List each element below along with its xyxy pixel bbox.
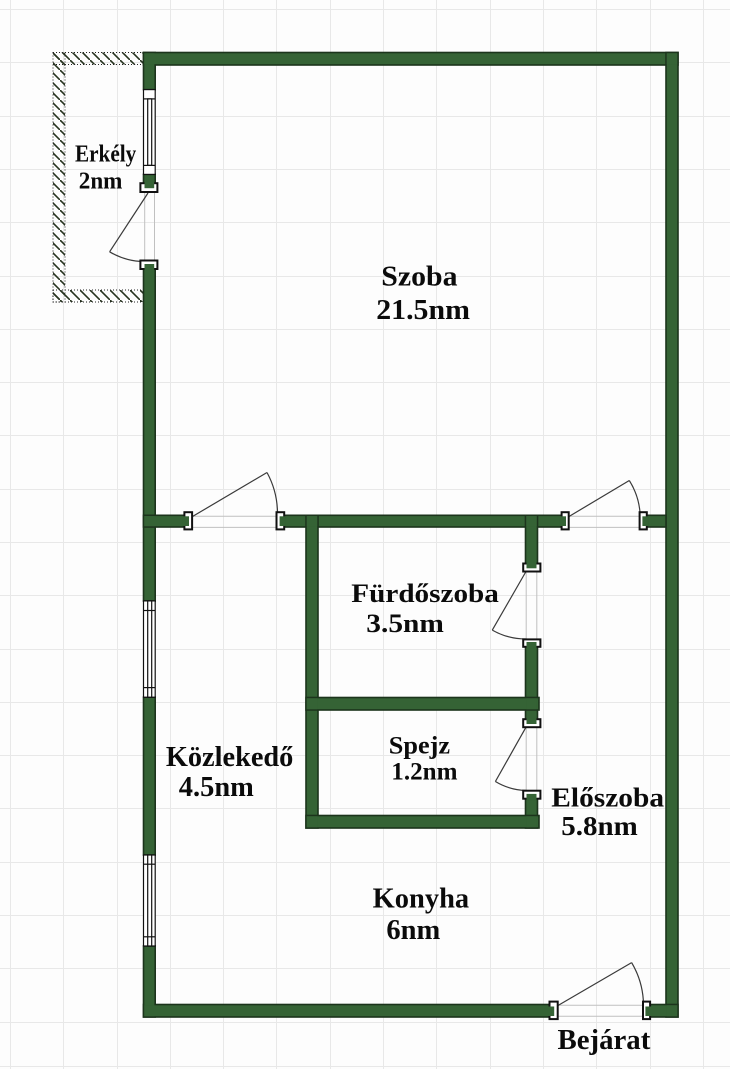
svg-text:Erkély: Erkély [75,141,136,167]
svg-text:Szoba: Szoba [381,261,458,293]
svg-text:21.5nm: 21.5nm [376,294,470,326]
svg-text:Előszoba: Előszoba [551,782,664,812]
svg-text:Közlekedő: Közlekedő [166,741,294,773]
svg-text:1.2nm: 1.2nm [391,759,457,786]
svg-text:3.5nm: 3.5nm [366,609,444,638]
svg-text:6nm: 6nm [386,914,440,946]
svg-text:Spejz: Spejz [389,732,450,759]
svg-text:2nm: 2nm [79,168,123,194]
svg-text:Fürdőszoba: Fürdőszoba [351,579,499,608]
svg-text:5.8nm: 5.8nm [561,811,638,841]
svg-text:4.5nm: 4.5nm [179,771,254,803]
svg-text:Bejárat: Bejárat [558,1024,651,1056]
svg-text:Konyha: Konyha [373,883,470,915]
